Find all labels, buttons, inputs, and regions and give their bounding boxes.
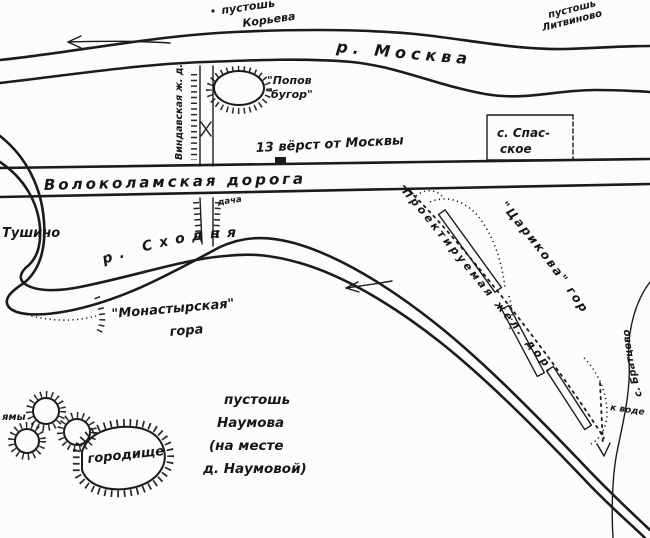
spasskoye-label-line1: с. Спас- xyxy=(497,126,550,140)
spasskoye-label-line2: ское xyxy=(500,142,532,156)
monastyrskaya-label-line2: гора xyxy=(169,322,204,340)
gorodishche-mounds xyxy=(11,394,171,494)
naumova-label-line3: (на месте xyxy=(209,438,283,454)
naumova-label-line1: пустошь xyxy=(224,392,290,408)
map-canvas: пустошь Корьева пустошь Литвиново р. Мос… xyxy=(0,0,650,538)
tushino-label: Тушино xyxy=(2,226,60,241)
embankment-rect-3 xyxy=(547,366,592,429)
flow-arrow-west-icon xyxy=(68,36,170,48)
moskva-river-bottom-bank xyxy=(0,60,650,97)
hand-drawn-map: пустошь Корьева пустошь Литвиново р. Мос… xyxy=(0,0,650,538)
popov-hillock xyxy=(209,69,269,111)
down-arrow-icon xyxy=(597,383,610,456)
monastyrskaya-hill-slope xyxy=(14,297,102,332)
vertical-strip-label: Виндавская ж. д. xyxy=(174,64,185,160)
versts-label: 13 вёрст от Москвы xyxy=(255,133,404,156)
naumova-label-line4: д. Наумовой) xyxy=(202,461,307,477)
bratsevo-label: с. Братцево xyxy=(621,329,645,398)
monastyrskaya-label-line1: "Монастырская" xyxy=(111,296,235,322)
dot-marker xyxy=(211,9,214,12)
crossing-x-icon xyxy=(201,122,211,136)
skhodnya-lower-bank xyxy=(0,162,645,538)
road-label: Волоколамская дорога xyxy=(44,170,307,194)
moskva-river-top-bank xyxy=(0,30,650,60)
popov-bugor-label-line2: бугор" xyxy=(271,88,313,101)
dacha-label: дача xyxy=(216,195,243,208)
k-vode-label: к воде xyxy=(610,403,646,418)
popov-bugor-label-line1: "Попов xyxy=(267,74,312,87)
yamy-label: ямы xyxy=(1,412,26,423)
projected-railway-label: Проектируемая жел. дор. xyxy=(400,185,559,376)
verst-post-marker xyxy=(275,157,286,165)
gorodishche-label: городище xyxy=(87,444,165,467)
naumova-label-line2: Наумова xyxy=(217,415,284,431)
